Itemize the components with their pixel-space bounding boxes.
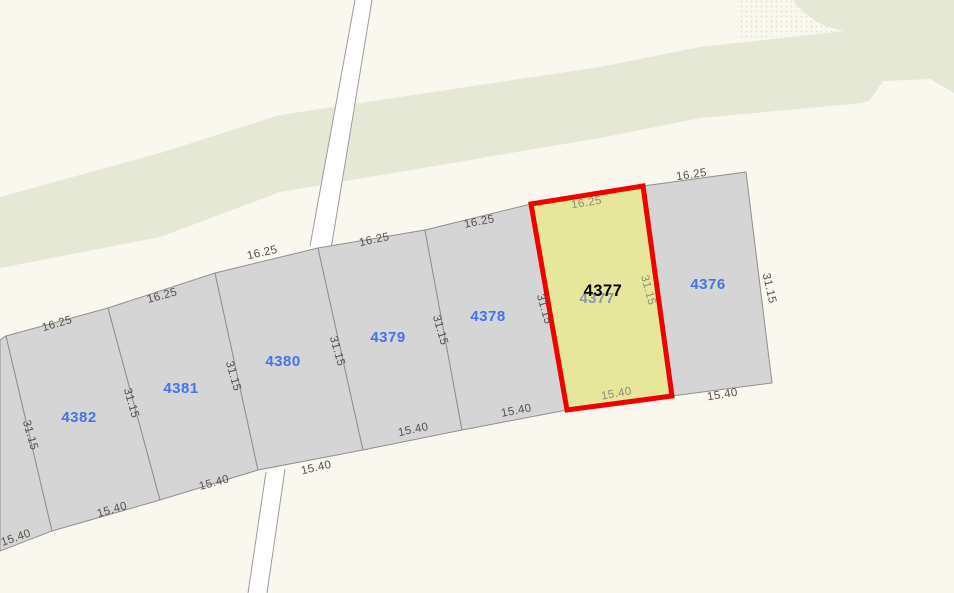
parcel-label-4381: 4381: [163, 380, 198, 397]
map-canvas[interactable]: 16.25 16.25 16.25 16.25 16.25 16.25 16.2…: [0, 0, 954, 593]
parcel-label-4376: 4376: [690, 276, 725, 293]
cadastral-map-svg: 16.25 16.25 16.25 16.25 16.25 16.25 16.2…: [0, 0, 954, 593]
parcel-label-4378: 4378: [470, 308, 505, 325]
parcel-label-4380: 4380: [265, 353, 300, 370]
parcel-label-4379: 4379: [370, 329, 405, 346]
parcel-label-4377-selected: 4377: [584, 282, 623, 300]
parcel-label-4382: 4382: [61, 409, 96, 426]
